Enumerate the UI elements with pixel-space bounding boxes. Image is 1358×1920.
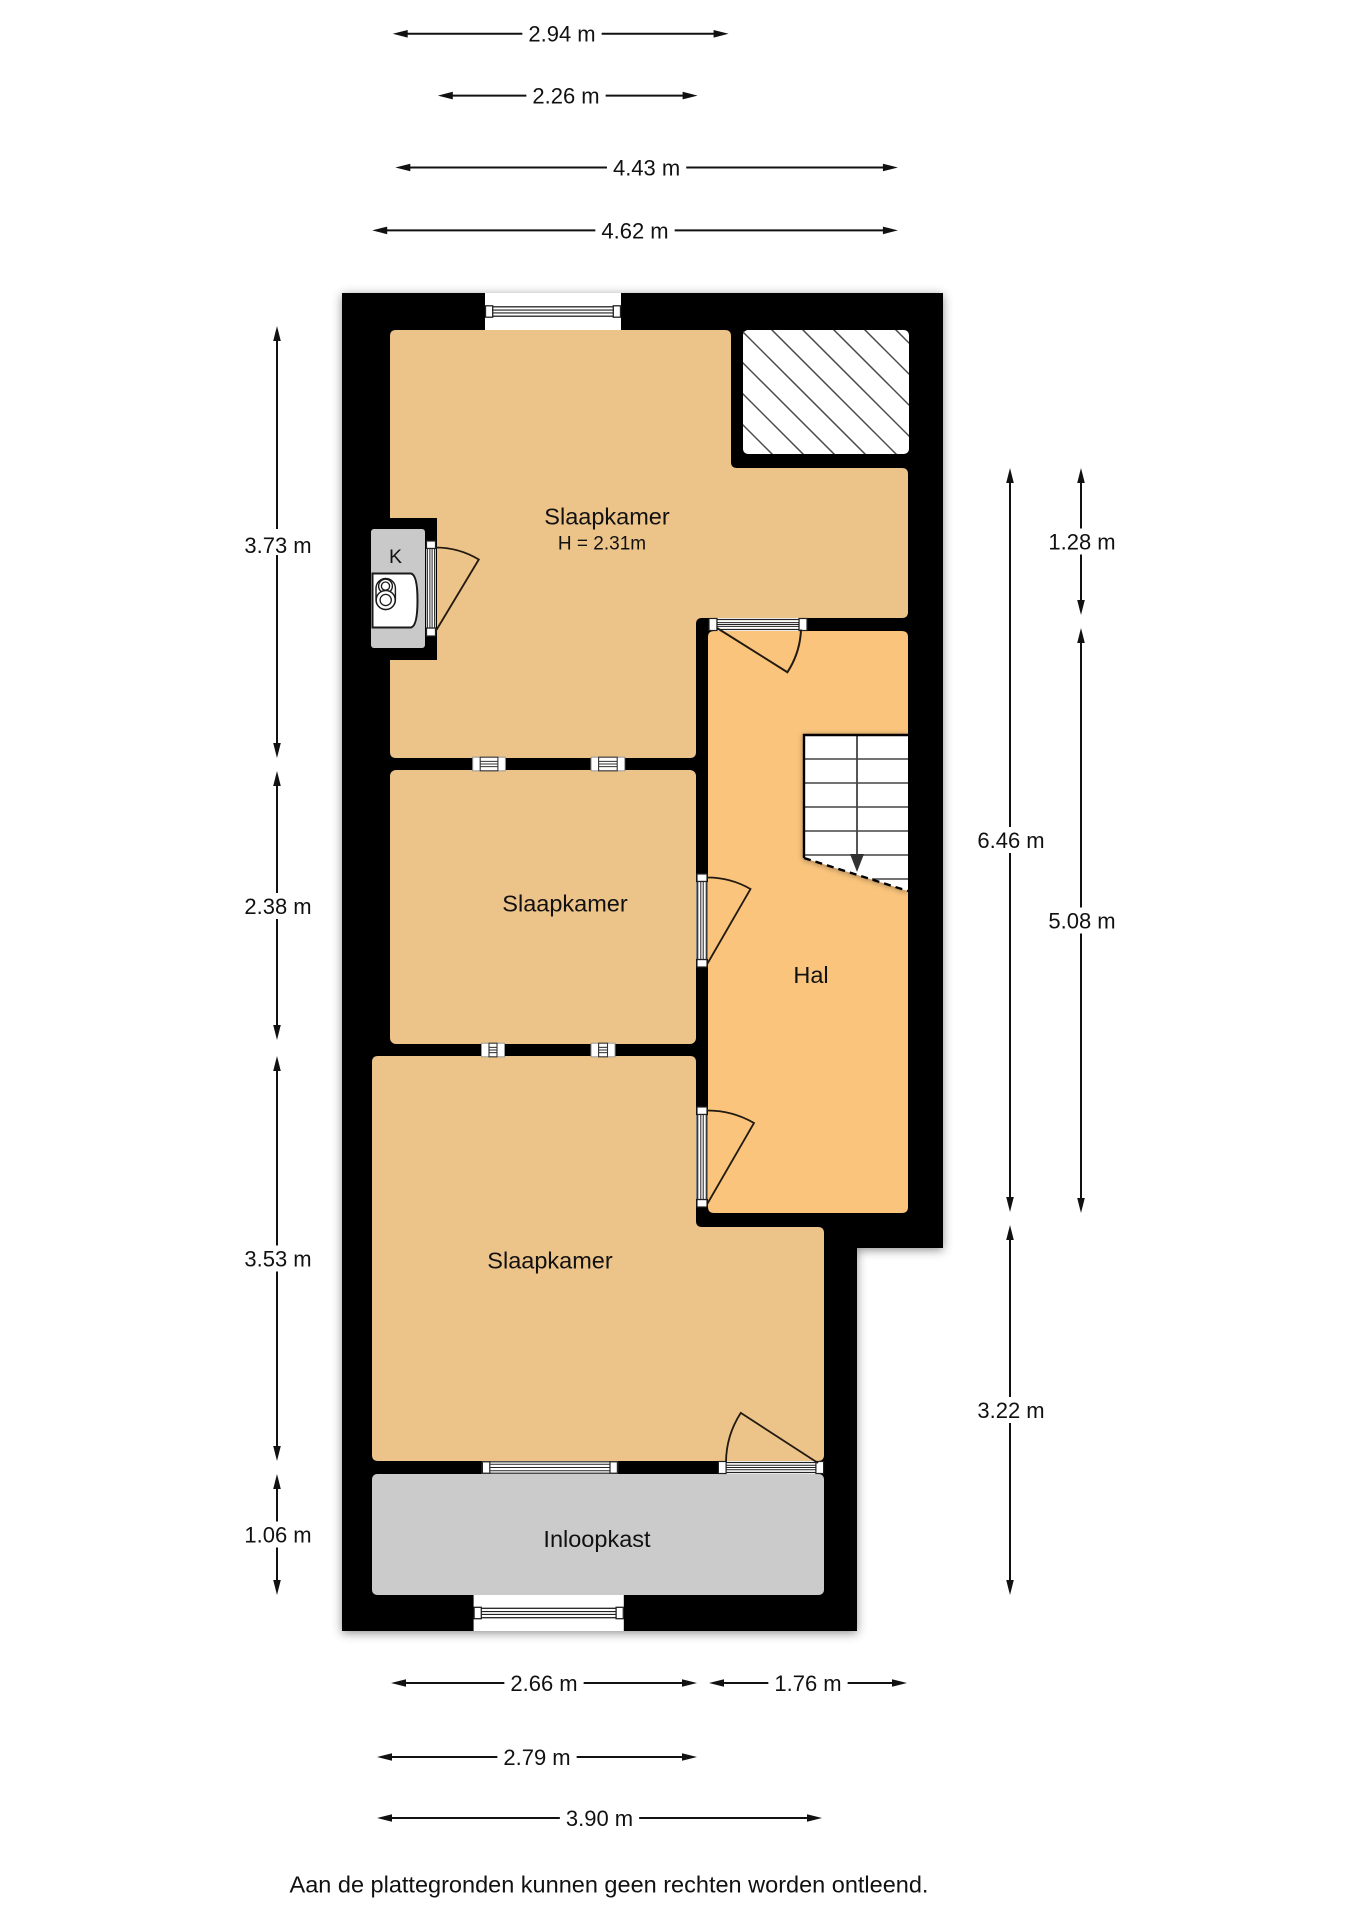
svg-text:Hal: Hal [793,962,828,988]
svg-text:3.53 m: 3.53 m [244,1246,311,1271]
svg-text:3.73 m: 3.73 m [244,533,311,558]
svg-text:5.08 m: 5.08 m [1048,908,1115,933]
svg-text:Slaapkamer: Slaapkamer [502,891,628,917]
svg-text:2.79 m: 2.79 m [503,1745,570,1770]
svg-text:3.90 m: 3.90 m [566,1806,633,1831]
svg-text:6.46 m: 6.46 m [977,828,1044,853]
svg-text:Aan de plattegronden kunnen ge: Aan de plattegronden kunnen geen rechten… [290,1872,929,1898]
svg-text:4.62 m: 4.62 m [601,218,668,243]
svg-text:2.26 m: 2.26 m [532,84,599,109]
svg-text:3.22 m: 3.22 m [977,1398,1044,1423]
svg-text:2.38 m: 2.38 m [244,894,311,919]
svg-text:2.94 m: 2.94 m [528,22,595,47]
svg-text:Inloopkast: Inloopkast [543,1526,651,1552]
svg-text:H = 2.31m: H = 2.31m [558,534,646,555]
svg-text:1.28 m: 1.28 m [1048,529,1115,554]
svg-text:1.76 m: 1.76 m [774,1671,841,1696]
svg-text:4.43 m: 4.43 m [613,155,680,180]
svg-text:K: K [389,546,402,568]
svg-text:Slaapkamer: Slaapkamer [544,503,670,529]
svg-text:Slaapkamer: Slaapkamer [487,1248,613,1274]
svg-text:1.06 m: 1.06 m [244,1522,311,1547]
svg-text:2.66 m: 2.66 m [510,1671,577,1696]
